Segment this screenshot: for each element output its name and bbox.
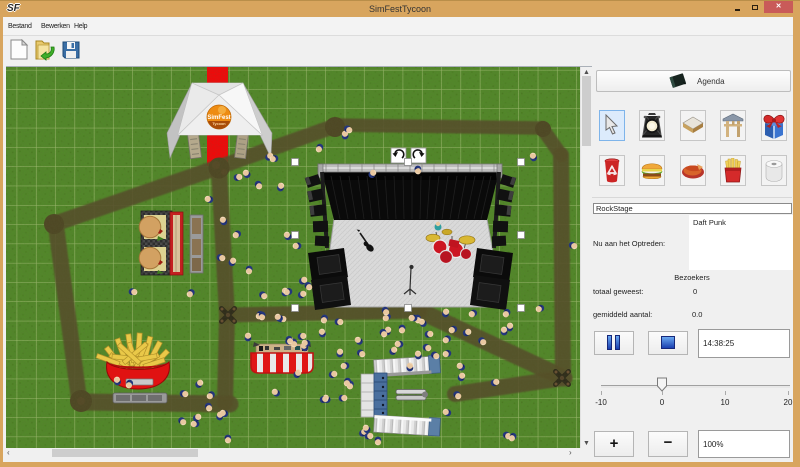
svg-text:Tycoon: Tycoon — [212, 122, 226, 126]
svg-text:SimFest: SimFest — [207, 115, 230, 121]
